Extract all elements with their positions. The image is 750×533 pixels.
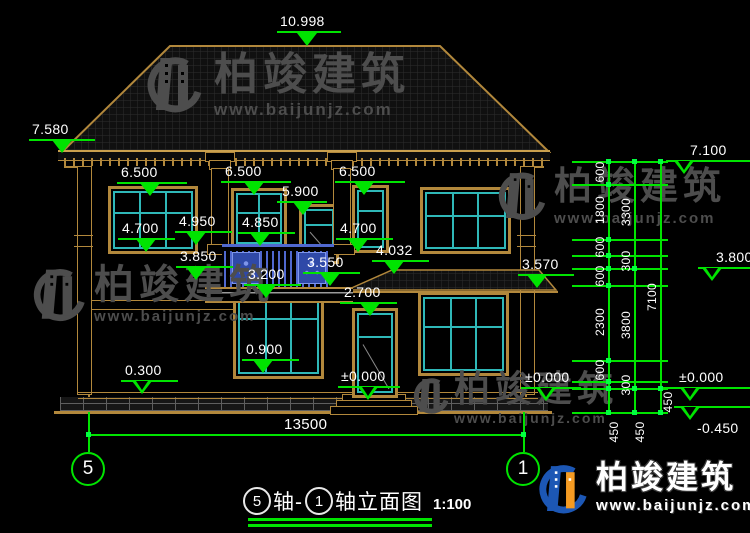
dimension-line	[88, 434, 523, 436]
level-triangle-icon	[680, 388, 700, 401]
dimension-line	[634, 161, 636, 412]
dimension-label: 6.500	[121, 164, 158, 180]
level-triangle-icon	[250, 233, 270, 246]
pilaster-left-molding	[74, 235, 93, 247]
window-mullion	[477, 194, 479, 247]
watermark-brand: 柏竣建筑	[554, 168, 726, 208]
level-triangle-icon	[384, 261, 404, 274]
dimension-label: 4.032	[376, 242, 413, 258]
watermark-left: 柏竣建筑 www.baijunjz.com	[26, 264, 274, 332]
level-triangle-outer	[140, 183, 160, 196]
dimension-tick	[632, 410, 637, 415]
elevation-drawing-sheet: 柏竣建筑 www.baijunjz.com 柏竣建筑 www.baijunjz.…	[0, 0, 750, 533]
logo-url-text: www.baijunjz.com	[596, 497, 750, 514]
dimension-tick	[606, 182, 611, 187]
dimension-label: 3.200	[248, 266, 285, 282]
window-transom	[425, 326, 502, 328]
dimension-label: 5.900	[282, 183, 319, 199]
level-triangle-icon	[132, 381, 152, 394]
brand-glyph-icon	[492, 168, 546, 230]
dimension-label: 2300	[593, 308, 607, 336]
watermark-url: www.baijunjz.com	[94, 308, 274, 325]
dimension-label: 600	[593, 237, 607, 258]
level-triangle-outer	[250, 233, 270, 246]
level-triangle-icon	[253, 360, 273, 373]
title-text: 轴-	[273, 486, 303, 516]
dimension-label: 300	[619, 375, 633, 396]
level-triangle-icon	[536, 388, 556, 401]
dimension-label: 13500	[284, 416, 327, 433]
dimension-line	[572, 184, 668, 186]
dimension-label: 3800	[619, 311, 633, 339]
level-triangle-outer	[253, 360, 273, 373]
dimension-line	[572, 239, 668, 241]
brand-logo: 柏竣建筑 www.baijunjz.com	[532, 461, 750, 523]
watermark-brand: 柏竣建筑	[214, 52, 410, 98]
level-triangle-icon	[136, 239, 156, 252]
level-triangle-outer	[297, 33, 317, 46]
dimension-label: -0.450	[697, 420, 739, 436]
level-triangle-outer	[320, 273, 340, 286]
dimension-label: 600	[593, 266, 607, 287]
level-triangle-outer	[136, 239, 156, 252]
level-triangle-icon	[354, 182, 374, 195]
brand-glyph-icon	[410, 370, 448, 426]
brand-glyph-icon	[26, 264, 86, 332]
dimension-line	[572, 161, 668, 163]
level-triangle-icon	[348, 239, 368, 252]
level-triangle-inner	[362, 387, 374, 396]
dimension-tick	[632, 159, 637, 164]
dimension-label: 3.800	[716, 249, 750, 265]
window-mullion	[475, 299, 477, 369]
axis-bubble-5-label: 5	[83, 458, 94, 480]
level-triangle-outer	[527, 275, 547, 288]
watermark-url: www.baijunjz.com	[214, 100, 410, 120]
dimension-line	[572, 412, 668, 414]
title-text: 轴立面图	[335, 486, 423, 516]
dimension-label: 6.500	[339, 163, 376, 179]
drawing-title: 5 轴- 1 轴立面图 1:100	[243, 486, 471, 516]
dimension-label: ±0.000	[525, 369, 570, 385]
dimension-label: 4.950	[179, 213, 216, 229]
dimension-label: 4.850	[242, 214, 279, 230]
dimension-label: 0.300	[125, 362, 162, 378]
dimension-label: 450	[633, 422, 647, 443]
dimension-label: 1800	[593, 196, 607, 224]
dimension-line	[660, 161, 662, 412]
level-triangle-outer	[384, 261, 404, 274]
axis-bubble-1-label: 1	[518, 458, 529, 480]
dimension-label: 4.700	[122, 220, 159, 236]
level-triangle-inner	[540, 388, 552, 397]
dimension-label: ±0.000	[341, 368, 386, 384]
level-triangle-icon	[256, 285, 276, 298]
level-triangle-inner	[684, 388, 696, 397]
dimension-label: 450	[607, 422, 621, 443]
level-triangle-outer	[348, 239, 368, 252]
level-triangle-icon	[527, 275, 547, 288]
level-triangle-icon	[297, 33, 317, 46]
dimension-label: 4.700	[340, 220, 377, 236]
entry-step	[330, 406, 418, 415]
level-triangle-icon	[186, 232, 206, 245]
level-triangle-inner	[136, 381, 148, 390]
window-mullion	[450, 299, 452, 369]
level-triangle-icon	[52, 140, 72, 153]
dimension-tick	[658, 159, 663, 164]
dimension-tick	[521, 432, 526, 437]
level-triangle-inner	[706, 268, 718, 277]
title-axis-circle-5: 5	[243, 487, 271, 515]
level-triangle-icon	[293, 202, 313, 215]
dimension-label: 7100	[645, 283, 659, 311]
level-triangle-icon	[186, 267, 206, 280]
window-transom	[359, 210, 382, 212]
watermark-bottom: 柏竣建筑 www.baijunjz.com	[410, 370, 618, 426]
level-triangle-outer	[52, 140, 72, 153]
brand-logo-icon	[532, 461, 588, 523]
title-axis-circle-1: 1	[305, 487, 333, 515]
level-triangle-outer	[293, 202, 313, 215]
title-scale: 1:100	[433, 496, 471, 513]
dimension-label: 3.570	[522, 256, 559, 272]
level-triangle-outer	[360, 303, 380, 316]
window	[418, 292, 509, 376]
dimension-tick	[86, 432, 91, 437]
level-triangle-icon	[244, 182, 264, 195]
dimension-tick	[606, 410, 611, 415]
door	[352, 308, 398, 398]
dimension-label: 10.998	[280, 13, 325, 29]
level-triangle-outer	[256, 285, 276, 298]
watermark-top: 柏竣建筑 www.baijunjz.com	[138, 52, 410, 124]
pilaster-right-molding	[517, 235, 536, 247]
level-triangle-icon	[358, 387, 378, 400]
logo-brand-text: 柏竣建筑	[596, 461, 750, 495]
level-triangle-icon	[702, 268, 722, 281]
axis-bubble-5: 5	[71, 452, 105, 486]
level-triangle-icon	[674, 161, 694, 174]
brand-glyph-icon	[138, 52, 204, 124]
dimension-label: 3.850	[180, 248, 217, 264]
window-glazing	[423, 297, 504, 371]
dimension-tick	[658, 386, 663, 391]
level-triangle-outer	[354, 182, 374, 195]
level-triangle-icon	[360, 303, 380, 316]
level-triangle-icon	[320, 273, 340, 286]
dimension-label: 3300	[619, 198, 633, 226]
level-triangle-inner	[678, 161, 690, 170]
dimension-label: 2.700	[344, 284, 381, 300]
dimension-label: 7.100	[690, 142, 727, 158]
dimension-label: 7.580	[32, 121, 69, 137]
dimension-line	[248, 524, 432, 527]
column-shaft	[211, 168, 229, 246]
dimension-line	[572, 360, 668, 362]
level-triangle-inner	[684, 407, 696, 416]
dimension-line	[658, 387, 750, 389]
dimension-label: 3.550	[307, 254, 344, 270]
level-triangle-icon	[140, 183, 160, 196]
dimension-label: ±0.000	[679, 369, 724, 385]
window-mullion	[452, 194, 454, 247]
watermark-url: www.baijunjz.com	[554, 210, 726, 227]
dimension-tick	[606, 386, 611, 391]
level-triangle-outer	[186, 232, 206, 245]
dimension-label: 600	[593, 162, 607, 183]
dimension-label: 6.500	[225, 163, 262, 179]
level-triangle-icon	[680, 407, 700, 420]
level-triangle-outer	[244, 182, 264, 195]
dimension-line	[248, 518, 432, 521]
dimension-label: 600	[593, 360, 607, 381]
level-triangle-outer	[186, 267, 206, 280]
dimension-label: 450	[661, 392, 675, 413]
dimension-label: 0.900	[246, 341, 283, 357]
dimension-label: 300	[619, 251, 633, 272]
